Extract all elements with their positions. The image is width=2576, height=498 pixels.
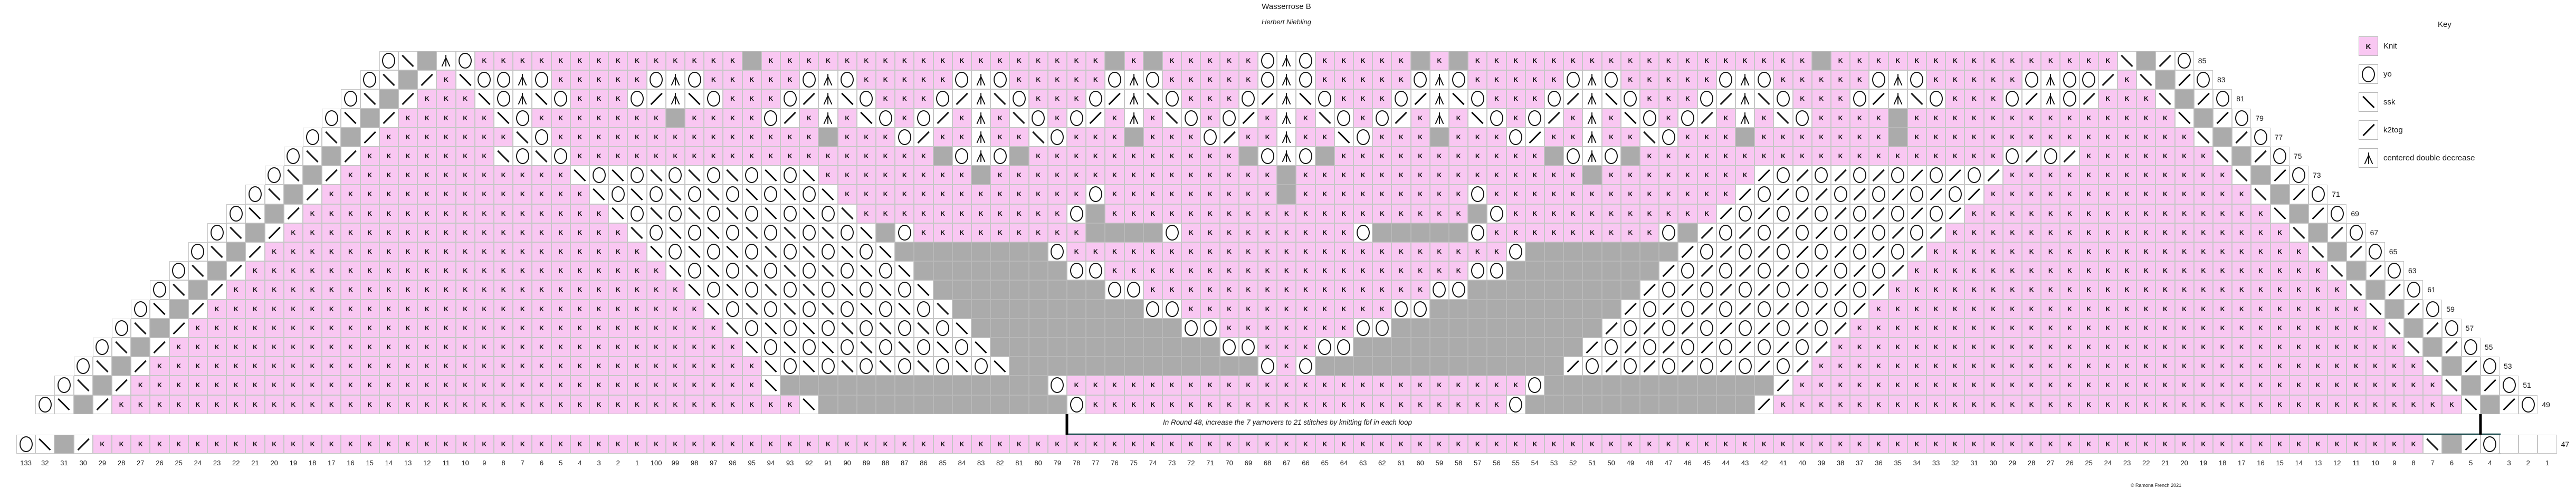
chart-cell: K bbox=[1621, 128, 1640, 147]
chart-cell: K bbox=[2136, 319, 2155, 338]
chart-cell: K bbox=[1697, 204, 1716, 223]
chart-cell bbox=[74, 376, 93, 395]
chart-cell: K bbox=[2289, 435, 2308, 454]
column-number: 59 bbox=[1430, 459, 1449, 467]
centered-double-decrease-icon bbox=[438, 53, 454, 69]
chart-cell: K bbox=[1659, 166, 1678, 185]
chart-cell: K bbox=[475, 204, 494, 223]
knit-mark: K bbox=[2335, 441, 2340, 447]
chart-cell bbox=[990, 70, 1009, 89]
chart-cell: K bbox=[245, 376, 264, 395]
chart-cell bbox=[1773, 223, 1792, 242]
ssk-icon bbox=[803, 284, 815, 296]
chart-cell: K bbox=[2079, 435, 2098, 454]
chart-cell: K bbox=[2346, 435, 2365, 454]
centered-double-decrease-icon bbox=[1737, 91, 1753, 107]
knit-mark: K bbox=[2258, 210, 2263, 217]
chart-cell bbox=[1773, 185, 1792, 204]
k2tog-icon bbox=[2026, 150, 2038, 162]
chart-cell bbox=[742, 338, 761, 357]
column-number: 46 bbox=[1678, 459, 1697, 467]
chart-cell: K bbox=[1067, 435, 1086, 454]
knit-mark: K bbox=[2144, 115, 2149, 121]
chart-cell: K bbox=[494, 185, 513, 204]
knit-mark: K bbox=[387, 306, 392, 312]
knit-mark: K bbox=[387, 248, 392, 255]
chart-cell: K bbox=[1334, 435, 1353, 454]
chart-cell bbox=[1067, 300, 1086, 319]
chart-cell bbox=[933, 280, 952, 299]
yo-icon bbox=[784, 320, 797, 336]
knit-mark: K bbox=[2010, 441, 2015, 447]
chart-cell bbox=[475, 89, 494, 108]
yo-icon bbox=[1166, 91, 1179, 107]
chart-cell bbox=[2518, 435, 2537, 454]
knit-mark: K bbox=[2125, 248, 2130, 255]
chart-cell: K bbox=[1926, 128, 1945, 147]
yo-icon bbox=[1299, 53, 1312, 69]
chart-cell: K bbox=[1067, 147, 1086, 166]
row-number: 55 bbox=[2485, 338, 2493, 357]
knit-mark: K bbox=[2297, 363, 2302, 369]
chart-cell: K bbox=[570, 147, 589, 166]
knit-mark: K bbox=[558, 191, 563, 197]
chart-cell: K bbox=[1640, 435, 1659, 454]
chart-cell bbox=[1754, 223, 1773, 242]
chart-cell: K bbox=[494, 51, 513, 70]
knit-mark: K bbox=[425, 286, 430, 293]
chart-cell: K bbox=[1487, 435, 1506, 454]
knit-mark: K bbox=[2067, 210, 2072, 217]
chart-cell bbox=[723, 223, 742, 242]
chart-cell: K bbox=[551, 300, 570, 319]
knit-mark: K bbox=[673, 363, 678, 369]
knit-mark: K bbox=[310, 306, 315, 312]
knit-mark: K bbox=[1704, 191, 1709, 197]
ssk-icon bbox=[307, 150, 319, 162]
chart-cell bbox=[1449, 51, 1468, 70]
yo-icon bbox=[1089, 186, 1102, 202]
knit-mark: K bbox=[635, 153, 640, 159]
knit-mark: K bbox=[196, 325, 201, 331]
knit-mark: K bbox=[348, 441, 353, 447]
chart-cell: K bbox=[1105, 395, 1124, 414]
chart-cell: K bbox=[2194, 147, 2213, 166]
column-number: 80 bbox=[1029, 459, 1048, 467]
chart-cell: K bbox=[1850, 319, 1869, 338]
yo-symbol-icon bbox=[2359, 64, 2378, 84]
chart-cell: K bbox=[1181, 204, 1200, 223]
chart-cell: K bbox=[2194, 185, 2213, 204]
chart-cell: K bbox=[1200, 261, 1219, 280]
knit-mark: K bbox=[1055, 95, 1060, 102]
chart-cell: K bbox=[704, 319, 723, 338]
knit-mark: K bbox=[616, 401, 621, 408]
chart-cell bbox=[1277, 185, 1296, 204]
chart-cell: K bbox=[933, 204, 952, 223]
knit-mark: K bbox=[1093, 382, 1098, 388]
yo-icon bbox=[554, 148, 567, 164]
chart-cell bbox=[2175, 89, 2194, 108]
chart-cell: K bbox=[284, 280, 303, 299]
chart-cell: K bbox=[169, 395, 188, 414]
yo-icon bbox=[955, 72, 968, 88]
column-number: 33 bbox=[1926, 459, 1945, 467]
knit-mark: K bbox=[1265, 134, 1270, 140]
chart-cell bbox=[1391, 223, 1410, 242]
yo-icon bbox=[707, 244, 720, 260]
chart-cell bbox=[1850, 89, 1869, 108]
chart-cell: K bbox=[1372, 128, 1391, 147]
column-number: 56 bbox=[1487, 459, 1506, 467]
knit-mark: K bbox=[1380, 76, 1385, 83]
knit-mark: K bbox=[2201, 229, 2206, 236]
chart-cell: K bbox=[2098, 51, 2117, 70]
chart-cell: K bbox=[570, 300, 589, 319]
chart-cell: K bbox=[1411, 435, 1430, 454]
yo-icon bbox=[841, 301, 854, 317]
chart-cell: K bbox=[1964, 109, 1983, 128]
knit-mark: K bbox=[2029, 191, 2034, 197]
knit-mark: K bbox=[616, 134, 621, 140]
chart-cell: K bbox=[245, 395, 264, 414]
chart-cell bbox=[207, 261, 226, 280]
knit-mark: K bbox=[1342, 153, 1347, 159]
chart-cell: K bbox=[2060, 109, 2079, 128]
chart-cell bbox=[647, 223, 666, 242]
knit-mark: K bbox=[1953, 344, 1958, 350]
knit-mark: K bbox=[2010, 325, 2015, 331]
chart-cell: K bbox=[2117, 109, 2136, 128]
knit-mark: K bbox=[463, 344, 468, 350]
chart-cell bbox=[780, 89, 799, 108]
chart-cell bbox=[1812, 300, 1831, 319]
chart-cell bbox=[1067, 357, 1086, 376]
chart-cell: K bbox=[1296, 185, 1315, 204]
k2tog-icon bbox=[1701, 265, 1713, 277]
knit-mark: K bbox=[2106, 267, 2111, 274]
chart-cell bbox=[207, 280, 226, 299]
chart-cell bbox=[2480, 376, 2499, 395]
ssk-icon bbox=[918, 284, 930, 296]
chart-cell: K bbox=[990, 204, 1009, 223]
knit-mark: K bbox=[2316, 401, 2321, 408]
knit-mark: K bbox=[1609, 134, 1614, 140]
chart-cell: K bbox=[742, 435, 761, 454]
ssk-icon bbox=[689, 284, 701, 296]
row-number: 57 bbox=[2466, 319, 2474, 338]
chart-cell bbox=[990, 376, 1009, 395]
yo-icon bbox=[1452, 282, 1465, 298]
chart-cell: K bbox=[1506, 166, 1525, 185]
yo-icon bbox=[1414, 72, 1427, 88]
knit-mark: K bbox=[845, 191, 850, 197]
knit-mark: K bbox=[2201, 153, 2206, 159]
chart-cell: K bbox=[494, 261, 513, 280]
chart-cell: K bbox=[1258, 128, 1277, 147]
knit-mark: K bbox=[1953, 363, 1958, 369]
knit-mark: K bbox=[2258, 382, 2263, 388]
chart-cell bbox=[1029, 338, 1048, 357]
knit-mark: K bbox=[1800, 58, 1805, 64]
chart-cell bbox=[666, 166, 685, 185]
chart-cell: K bbox=[436, 435, 455, 454]
knit-mark: K bbox=[1131, 172, 1136, 178]
chart-cell bbox=[1697, 376, 1716, 395]
knit-mark: K bbox=[692, 153, 697, 159]
chart-cell: K bbox=[2175, 147, 2194, 166]
chart-cell: K bbox=[1124, 166, 1143, 185]
knit-mark: K bbox=[329, 248, 334, 255]
chart-cell bbox=[914, 395, 933, 414]
chart-cell bbox=[1812, 319, 1831, 338]
knit-mark: K bbox=[921, 210, 926, 217]
chart-cell: K bbox=[1391, 242, 1410, 261]
chart-cell: K bbox=[1258, 280, 1277, 299]
knit-mark: K bbox=[367, 191, 372, 197]
chart-cell bbox=[2232, 147, 2251, 166]
chart-cell bbox=[2213, 147, 2232, 166]
yo-icon bbox=[2503, 377, 2516, 393]
knit-mark: K bbox=[1055, 58, 1060, 64]
chart-cell bbox=[838, 319, 857, 338]
knit-mark: K bbox=[597, 382, 602, 388]
knit-mark: K bbox=[2182, 363, 2187, 369]
chart-cell: K bbox=[876, 51, 895, 70]
chart-cell: K bbox=[2041, 242, 2060, 261]
knit-mark: K bbox=[1380, 306, 1385, 312]
column-number: 8 bbox=[2404, 459, 2423, 467]
knit-mark: K bbox=[864, 441, 869, 447]
chart-cell: K bbox=[895, 51, 914, 70]
column-number: 22 bbox=[2136, 459, 2155, 467]
chart-cell bbox=[1181, 319, 1200, 338]
knit-mark: K bbox=[1303, 115, 1308, 121]
chart-cell bbox=[1124, 300, 1143, 319]
chart-cell bbox=[1315, 109, 1334, 128]
knit-mark: K bbox=[291, 286, 296, 293]
chart-cell: K bbox=[914, 223, 933, 242]
chart-cell: K bbox=[2366, 357, 2385, 376]
chart-cell bbox=[1869, 185, 1888, 204]
chart-cell: K bbox=[570, 204, 589, 223]
chart-cell: K bbox=[2194, 166, 2213, 185]
chart-cell: K bbox=[436, 242, 455, 261]
chart-cell bbox=[1544, 300, 1563, 319]
chart-cell: K bbox=[475, 319, 494, 338]
knit-mark: K bbox=[940, 58, 945, 64]
chart-cell bbox=[1220, 338, 1239, 357]
chart-cell: K bbox=[1716, 185, 1735, 204]
k2tog-icon bbox=[1911, 207, 1923, 219]
chart-cell bbox=[1621, 357, 1640, 376]
chart-cell bbox=[1506, 280, 1525, 299]
ssk-icon bbox=[1147, 93, 1159, 105]
knit-mark: K bbox=[2010, 58, 2015, 64]
chart-cell: K bbox=[1124, 185, 1143, 204]
chart-cell bbox=[1239, 338, 1258, 357]
chart-cell bbox=[742, 300, 761, 319]
knit-mark: K bbox=[1876, 363, 1881, 369]
chart-cell bbox=[2270, 185, 2289, 204]
ssk-icon bbox=[612, 169, 624, 181]
chart-cell: K bbox=[1430, 51, 1449, 70]
knit-mark: K bbox=[291, 306, 296, 312]
chart-cell: K bbox=[2308, 319, 2327, 338]
chart-cell: K bbox=[1487, 166, 1506, 185]
ssk-icon bbox=[1911, 93, 1923, 105]
knit-mark: K bbox=[769, 95, 774, 102]
knit-mark: K bbox=[1170, 134, 1175, 140]
knit-mark: K bbox=[1972, 286, 1977, 293]
chart-cell: K bbox=[2079, 376, 2098, 395]
knit-mark: K bbox=[2239, 363, 2244, 369]
chart-cell bbox=[54, 376, 73, 395]
chart-cell: K bbox=[2117, 261, 2136, 280]
knit-mark: K bbox=[1303, 134, 1308, 140]
chart-cell bbox=[1735, 338, 1754, 357]
chart-cell bbox=[1850, 223, 1869, 242]
knit-mark: K bbox=[2201, 441, 2206, 447]
yo-icon bbox=[1777, 91, 1790, 107]
knit-mark: K bbox=[463, 401, 468, 408]
chart-cell bbox=[704, 89, 723, 108]
knit-mark: K bbox=[1055, 441, 1060, 447]
ssk-icon bbox=[116, 341, 128, 353]
chart-cell bbox=[761, 376, 780, 395]
knit-mark: K bbox=[482, 344, 487, 350]
k2tog-icon bbox=[1644, 322, 1656, 334]
knit-mark: K bbox=[2220, 248, 2225, 255]
chart-cell: K bbox=[1926, 357, 1945, 376]
knit-mark: K bbox=[1189, 134, 1194, 140]
knit-mark: K bbox=[501, 210, 506, 217]
yo-icon bbox=[745, 244, 758, 260]
chart-cell: K bbox=[2155, 357, 2174, 376]
chart-cell: K bbox=[780, 395, 799, 414]
knit-mark: K bbox=[406, 248, 411, 255]
knit-mark: K bbox=[520, 191, 525, 197]
k2tog-icon bbox=[1854, 188, 1866, 200]
knit-mark: K bbox=[2086, 153, 2091, 159]
chart-cell bbox=[1162, 223, 1181, 242]
chart-cell bbox=[1659, 242, 1678, 261]
chart-cell bbox=[226, 242, 245, 261]
chart-cell: K bbox=[1086, 70, 1105, 89]
knit-mark: K bbox=[1303, 306, 1308, 312]
knit-mark: K bbox=[558, 134, 563, 140]
knit-mark: K bbox=[940, 191, 945, 197]
ssk-icon bbox=[765, 246, 777, 258]
chart-cell: K bbox=[2098, 166, 2117, 185]
chart-cell bbox=[1430, 357, 1449, 376]
knit-mark: K bbox=[1934, 382, 1939, 388]
chart-cell: K bbox=[1315, 204, 1334, 223]
knit-mark: K bbox=[616, 248, 621, 255]
chart-cell: K bbox=[608, 51, 627, 70]
chart-cell: K bbox=[2079, 319, 2098, 338]
chart-cell: K bbox=[265, 435, 284, 454]
knit-mark: K bbox=[616, 363, 621, 369]
chart-cell bbox=[1430, 109, 1449, 128]
chart-cell: K bbox=[1907, 128, 1926, 147]
ssk-icon bbox=[841, 207, 853, 219]
chart-cell: K bbox=[952, 51, 971, 70]
yo-icon bbox=[1853, 91, 1866, 107]
chart-cell: K bbox=[456, 280, 475, 299]
knit-mark: K bbox=[1666, 210, 1671, 217]
column-number: 18 bbox=[303, 459, 322, 467]
chart-cell: K bbox=[1697, 435, 1716, 454]
chart-cell bbox=[1831, 166, 1850, 185]
chart-cell: K bbox=[436, 395, 455, 414]
knit-mark: K bbox=[654, 325, 659, 331]
chart-cell bbox=[818, 280, 837, 299]
knit-mark: K bbox=[1284, 248, 1289, 255]
chart-cell: K bbox=[551, 166, 570, 185]
knit-mark: K bbox=[654, 58, 659, 64]
chart-cell: K bbox=[1048, 51, 1067, 70]
column-number: 23 bbox=[207, 459, 226, 467]
chart-cell: K bbox=[1831, 70, 1850, 89]
chart-cell: K bbox=[494, 166, 513, 185]
knit-mark: K bbox=[902, 191, 907, 197]
chart-cell: K bbox=[551, 204, 570, 223]
chart-cell bbox=[1124, 109, 1143, 128]
knit-mark: K bbox=[1227, 267, 1232, 274]
chart-cell: K bbox=[513, 204, 532, 223]
chart-cell: K bbox=[818, 166, 837, 185]
knit-mark: K bbox=[597, 76, 602, 83]
knit-mark: K bbox=[711, 115, 716, 121]
knit-mark: K bbox=[2048, 134, 2053, 140]
knit-mark: K bbox=[2182, 286, 2187, 293]
chart-cell: K bbox=[1640, 185, 1659, 204]
ssk-icon bbox=[841, 93, 853, 105]
chart-cell: K bbox=[1907, 395, 1926, 414]
chart-cell: K bbox=[436, 338, 455, 357]
knit-mark: K bbox=[1017, 229, 1022, 236]
chart-cell: K bbox=[207, 319, 226, 338]
knit-mark: K bbox=[2201, 172, 2206, 178]
ssk-icon bbox=[918, 360, 930, 372]
chart-cell bbox=[341, 89, 360, 108]
knit-mark: K bbox=[902, 153, 907, 159]
chart-cell: K bbox=[2289, 300, 2308, 319]
chart-cell bbox=[1907, 70, 1926, 89]
chart-cell bbox=[1544, 319, 1563, 338]
chart-cell: K bbox=[2060, 128, 2079, 147]
knit-mark: K bbox=[1017, 134, 1022, 140]
knit-mark: K bbox=[1934, 76, 1939, 83]
chart-cell: K bbox=[2404, 395, 2423, 414]
chart-cell: K bbox=[2423, 395, 2442, 414]
chart-cell: K bbox=[685, 109, 704, 128]
knit-mark: K bbox=[2182, 134, 2187, 140]
knit-mark: K bbox=[2182, 441, 2187, 447]
chart-cell bbox=[2155, 51, 2174, 70]
chart-cell bbox=[780, 109, 799, 128]
knit-mark: K bbox=[234, 286, 238, 293]
knit-mark: K bbox=[1609, 115, 1614, 121]
chart-cell bbox=[1888, 204, 1907, 223]
yo-icon bbox=[2464, 339, 2477, 355]
ssk-icon bbox=[173, 284, 185, 296]
chart-cell: K bbox=[2136, 128, 2155, 147]
chart-cell bbox=[1716, 70, 1735, 89]
chart-cell bbox=[1602, 319, 1621, 338]
chart-cell: K bbox=[1984, 51, 2003, 70]
